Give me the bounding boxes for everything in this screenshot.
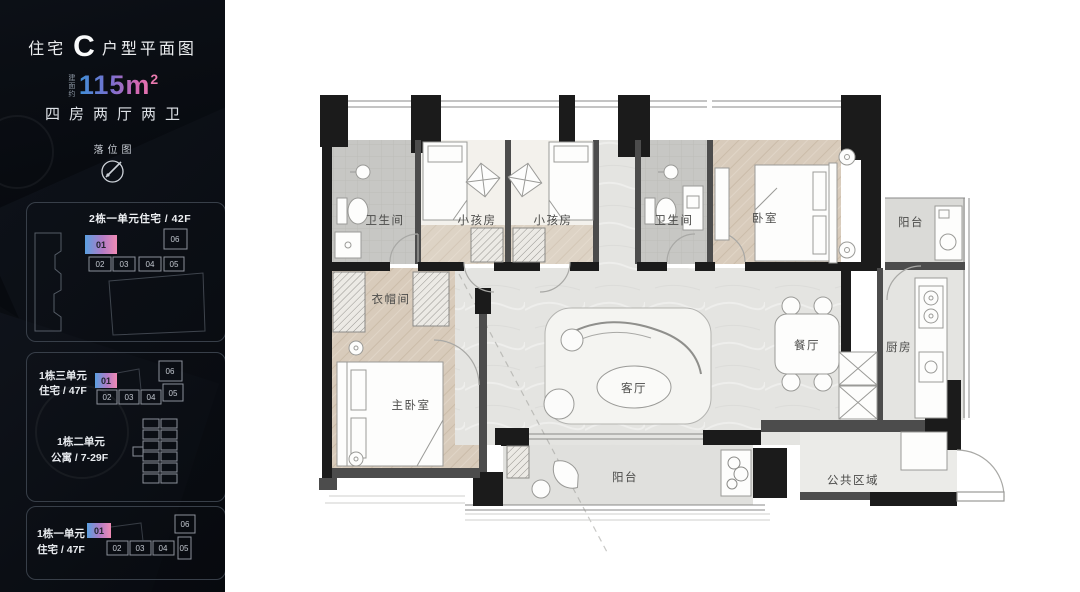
- room-label-kids-b: 小孩房: [534, 214, 573, 227]
- building-diagram: 01 02 03 04 05 06: [27, 227, 223, 339]
- svg-text:02: 02: [103, 393, 112, 402]
- svg-text:02: 02: [96, 260, 105, 269]
- svg-text:06: 06: [171, 235, 180, 244]
- svg-text:03: 03: [120, 260, 129, 269]
- svg-text:06: 06: [181, 520, 190, 529]
- compass-icon: [99, 158, 126, 185]
- block-name: 1栋一单元: [37, 527, 85, 542]
- svg-text:04: 04: [146, 260, 155, 269]
- svg-text:03: 03: [125, 393, 134, 402]
- svg-text:05: 05: [169, 389, 178, 398]
- apartment-stack-diagram: [131, 417, 191, 491]
- area-prefix: 建面约: [66, 74, 76, 98]
- room-label-balcony-bottom: 阳台: [612, 470, 638, 484]
- sidebar: 住宅 C 户型平面图 建面约 115m2 四房两厅两卫 落位图 2栋一单元住宅 …: [0, 0, 225, 592]
- locator-label: 落位图: [0, 141, 225, 156]
- area-value: 115m2: [79, 70, 159, 101]
- block-name: 1栋二单元: [57, 435, 105, 450]
- svg-text:04: 04: [159, 544, 168, 553]
- building-diagram: 01 02 03 04 05 06: [85, 511, 205, 573]
- title-category: 住宅: [28, 35, 66, 59]
- living-room-furniture: [544, 308, 711, 424]
- title-type-letter: C: [73, 32, 95, 62]
- room-label-living: 客厅: [621, 381, 647, 395]
- title-rest: 户型平面图: [102, 35, 197, 59]
- svg-text:04: 04: [147, 393, 156, 402]
- unit-locator-card-building2[interactable]: 2栋一单元住宅 / 42F 01 02 03 04 05 06: [26, 202, 225, 342]
- svg-text:05: 05: [170, 260, 179, 269]
- unit-locator-card-building1-unit1[interactable]: 1栋一单元 住宅 / 47F 01 02 03 04 05 06: [26, 506, 225, 580]
- layout-spec: 四房两厅两卫: [0, 103, 225, 124]
- room-label-cloak: 衣帽间: [372, 292, 411, 306]
- room-label-bedroom: 卧室: [752, 211, 778, 225]
- block-floors: 公寓 / 7-29F: [51, 451, 108, 466]
- room-label-kitchen: 厨房: [886, 341, 912, 354]
- area-sup: 2: [150, 71, 159, 87]
- building-diagram: 01 02 03 04 05 06: [91, 359, 221, 411]
- svg-text:01: 01: [94, 526, 104, 536]
- page-title: 住宅 C 户型平面图: [0, 32, 225, 62]
- screenshot-root: 住宅 C 户型平面图 建面约 115m2 四房两厅两卫 落位图 2栋一单元住宅 …: [0, 0, 1080, 592]
- room-label-bath-a: 卫生间: [366, 213, 405, 227]
- svg-text:02: 02: [113, 544, 122, 553]
- svg-text:03: 03: [136, 544, 145, 553]
- svg-text:06: 06: [166, 367, 175, 376]
- floor-plan: 卫生间 小孩房 小孩房 卫生间 卧室 阳台 厨房 衣帽间 主卧室 客厅 餐厅 阳…: [225, 0, 1080, 592]
- block-name: 1栋三单元: [39, 369, 87, 384]
- card-title: 2栋一单元住宅 / 42F: [89, 211, 191, 226]
- room-label-master: 主卧室: [392, 398, 431, 412]
- room-label-bath-b: 卫生间: [655, 213, 694, 227]
- unit-locator-card-building1[interactable]: 1栋三单元 住宅 / 47F 01 02 03 04 05 06 1栋二单元 公…: [26, 352, 225, 502]
- room-label-public: 公共区域: [827, 474, 879, 487]
- area-line: 建面约 115m2: [0, 70, 225, 101]
- block-floors: 住宅 / 47F: [39, 384, 87, 399]
- svg-text:01: 01: [96, 240, 106, 250]
- block-floors: 住宅 / 47F: [37, 543, 85, 558]
- room-label-kids-a: 小孩房: [458, 214, 497, 227]
- room-label-balcony-top: 阳台: [898, 215, 924, 229]
- room-label-dining: 餐厅: [794, 338, 820, 352]
- balcony-top-fixtures: [935, 206, 962, 260]
- svg-text:05: 05: [180, 544, 189, 553]
- svg-text:01: 01: [101, 376, 111, 386]
